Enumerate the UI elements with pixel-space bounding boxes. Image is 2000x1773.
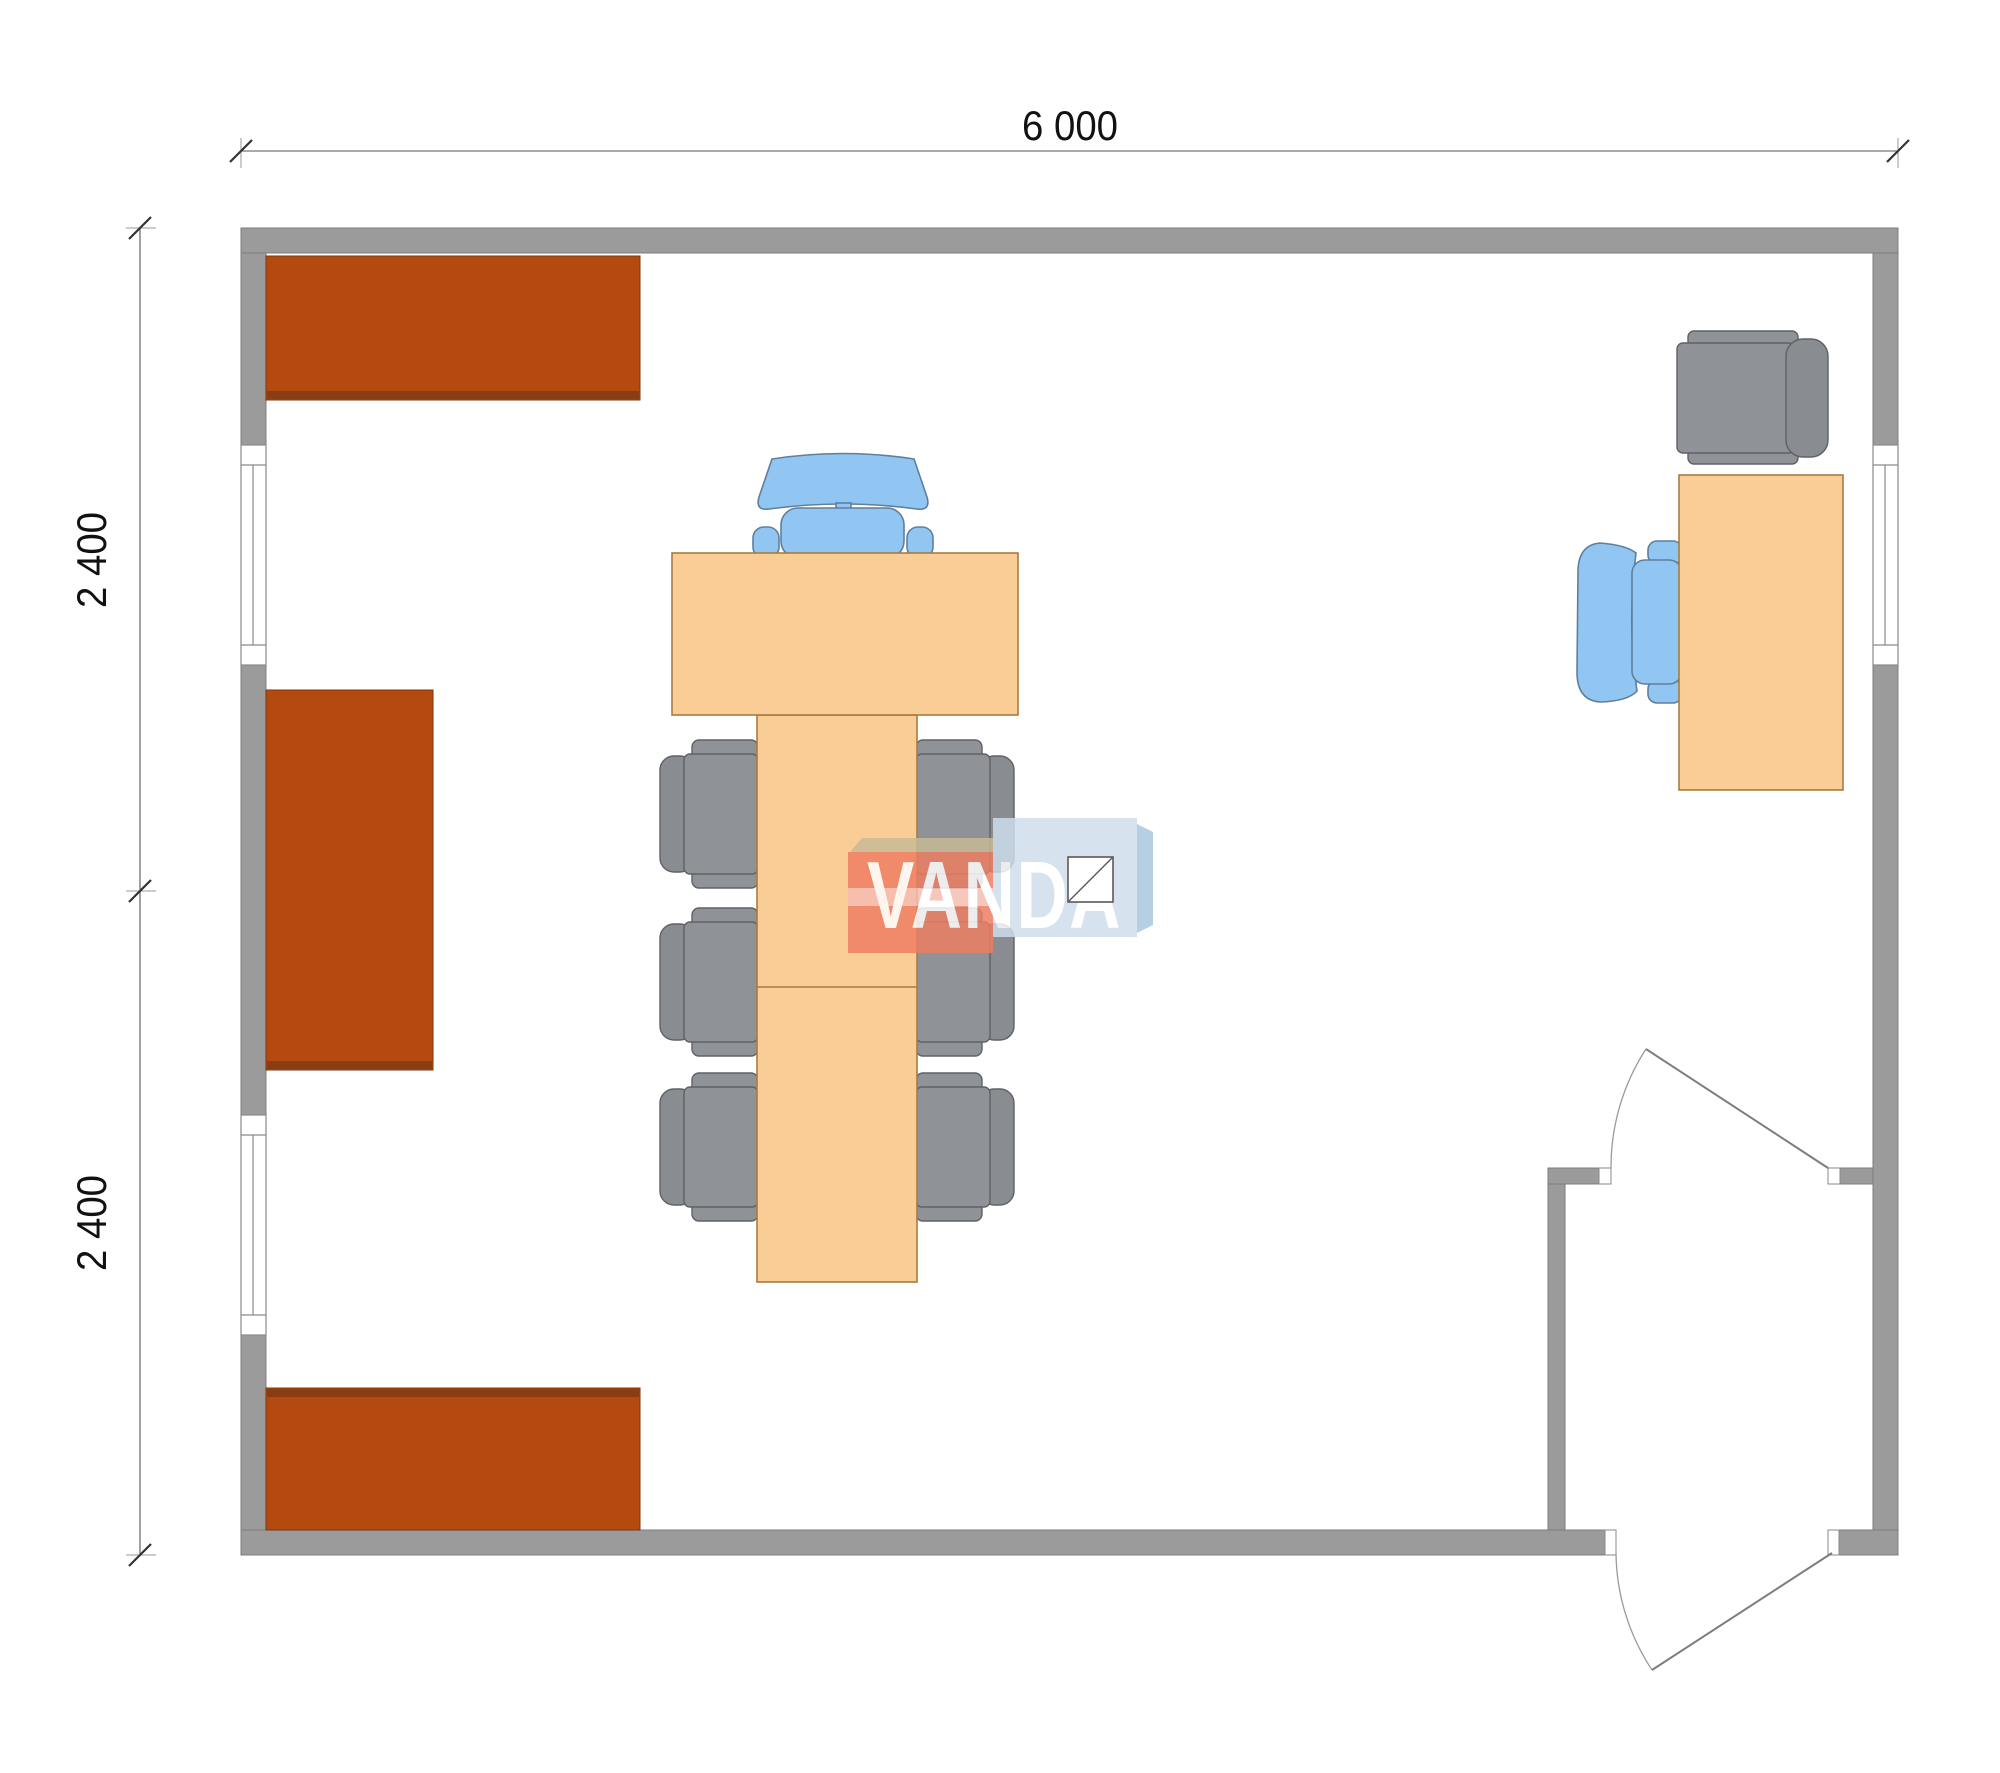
chair-seat [684, 1087, 758, 1207]
left-lower-dimension-label: 2 400 [68, 1175, 115, 1271]
chair-seat [684, 754, 758, 874]
window-left-upper [241, 445, 266, 665]
conference-chair-right-3 [916, 1073, 1014, 1221]
shelf-top-left-edge [267, 391, 639, 399]
logo-square-icon [1068, 857, 1113, 902]
top-dimension-label: 6 000 [1022, 102, 1118, 149]
shelf-middle-left-body [266, 690, 433, 1070]
desk-chair-blue [1577, 541, 1682, 703]
vanda-watermark: VANDA [848, 818, 1153, 953]
shelf-middle-left [266, 690, 433, 1070]
conference-chair-left-2 [660, 908, 758, 1056]
shelf-middle-left-edge [267, 1061, 432, 1069]
dimension-top: 6 000 [230, 102, 1909, 168]
wall-right-lower [1873, 665, 1898, 1530]
desk-set [1577, 331, 1843, 790]
interior-door-swing-arc [1611, 1049, 1646, 1168]
interior-door [1599, 1049, 1840, 1184]
interior-door-jamb-left [1599, 1168, 1611, 1184]
wall-left-lower [241, 1335, 266, 1530]
wall-left-middle [241, 665, 266, 1115]
wall-top [241, 228, 1898, 253]
left-upper-dimension-label: 2 400 [68, 512, 115, 608]
window-left-lower [241, 1115, 266, 1335]
entrance-door-jamb-left [1605, 1530, 1616, 1555]
vestibule-wall-right-stub [1840, 1168, 1873, 1184]
desk [1679, 475, 1843, 790]
wall-left-upper [241, 253, 266, 445]
wall-right-upper [1873, 253, 1898, 445]
desk-chair-seat [1632, 560, 1682, 684]
wall-bottom-left-segment [241, 1530, 1605, 1555]
executive-chair-headrest [758, 454, 928, 510]
chair-seat [1677, 343, 1795, 453]
chair-seat [916, 1087, 990, 1207]
executive-chair-seat [781, 508, 904, 558]
shelf-bottom-left-body [266, 1388, 640, 1530]
logo-blue-side-face [1137, 824, 1153, 933]
shelf-top-left-body [266, 256, 640, 400]
conference-chair-left-3 [660, 1073, 758, 1221]
shelves [266, 256, 640, 1530]
wall-bottom-right-segment [1839, 1530, 1898, 1555]
desk-chair-back [1577, 543, 1637, 702]
desk-visitor-chair-gray [1677, 331, 1828, 464]
conference-chair-left-1 [660, 740, 758, 888]
vestibule-wall-left-stub [1548, 1168, 1599, 1184]
vestibule-partition-wall [1548, 1184, 1565, 1530]
dimension-left: 2 400 2 400 [68, 217, 156, 1566]
floor-plan-drawing: 6 000 2 400 2 400 [0, 0, 2000, 1773]
shelf-bottom-left-edge [267, 1389, 639, 1397]
executive-chair-blue [753, 454, 933, 559]
interior-door-leaf [1646, 1049, 1828, 1168]
window-right [1873, 445, 1898, 665]
interior-door-jamb-right [1828, 1168, 1840, 1184]
chair-back [1786, 339, 1828, 457]
conference-table-top [672, 553, 1018, 715]
entrance-door-leaf [1652, 1553, 1832, 1670]
shelf-top-left [266, 256, 640, 400]
entrance-door-jamb-right [1828, 1530, 1839, 1555]
entrance-door-swing-arc [1616, 1553, 1652, 1670]
conference-table-long [757, 715, 917, 1282]
shelf-bottom-left [266, 1388, 640, 1530]
entrance-door [1605, 1530, 1839, 1670]
chair-seat [684, 922, 758, 1042]
floor-plan-page: 6 000 2 400 2 400 [0, 0, 2000, 1773]
